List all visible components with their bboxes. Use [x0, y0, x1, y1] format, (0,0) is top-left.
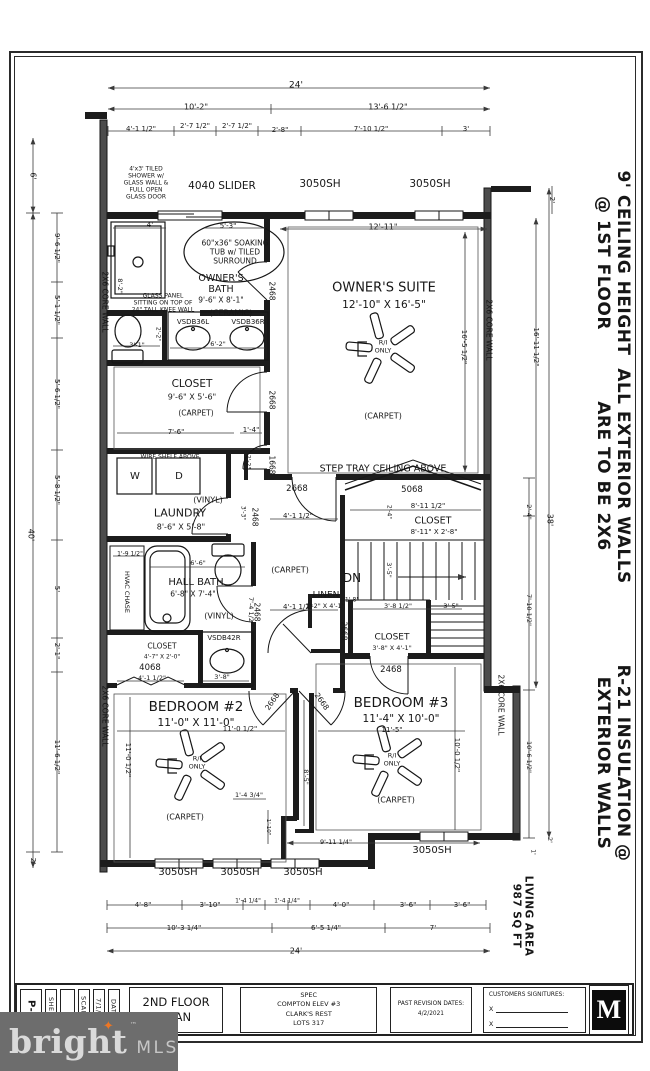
- window-3050sh-bottom-a: 3050SH: [158, 867, 197, 879]
- door-2668-suite-entry: 2668: [286, 484, 308, 494]
- room-owners-closet: CLOSET: [172, 378, 213, 390]
- dim-10-2: 10'-2": [184, 102, 208, 111]
- room-bedroom3-closet: CLOSET: [375, 633, 410, 644]
- dim-4-1-half-hall-top: 4'-1 1/2": [283, 512, 313, 520]
- dim-bedroom2-closet: 4'-7" X 2'-0": [144, 653, 180, 660]
- dim-5-3-tub: 5'-3": [220, 222, 237, 230]
- dim-2-8: 2'-8": [272, 126, 289, 134]
- dim-5ft-left: 5': [53, 586, 61, 592]
- window-3050sh-top-b: 3050SH: [409, 178, 450, 190]
- dim-overall-width-bottom: 24': [290, 946, 302, 955]
- note-ceiling-height: 9' CEILING HEIGHT @ 1ST FLOOR: [593, 170, 633, 355]
- finish-hall-bath: (VINYL): [204, 611, 233, 620]
- finish-owners-closet: (CARPET): [178, 410, 213, 419]
- project-info: SPEC COMPTON ELEV #3 CLARK'S REST LOTS 3…: [240, 987, 377, 1033]
- mls-text: MLS: [136, 1038, 178, 1058]
- dim-1-4-quarter-b: 1'-4 1/4": [274, 897, 300, 904]
- vanity-vsdb42r: VSDB42R: [207, 634, 240, 642]
- signatures-box: CUSTOMERS SIGNITURES: X X: [483, 987, 586, 1033]
- bright-mls-wordmark: bright ✦ ™: [9, 1025, 127, 1058]
- note-step-tray: STEP TRAY CEILING ABOVE: [320, 463, 447, 474]
- dim-38ft-right: 38': [545, 514, 554, 526]
- dim-bedroom3: 11'-4" X 10'-0": [363, 713, 440, 725]
- door-1668-hall: 1668: [267, 455, 276, 474]
- dim-bedroom3-closet: 3'-8" X 4'-1": [372, 645, 411, 653]
- dim-4-0: 4'-0": [333, 901, 350, 909]
- appliance-dryer: D: [175, 471, 183, 483]
- dim-10-0-half-b3: 10'-0 1/2": [453, 738, 461, 773]
- door-2668-bedroom2: 2668: [264, 692, 282, 713]
- room-hall-bath: HALL BATH: [168, 577, 223, 589]
- dim-1-4-34: 1'-4 3/4": [235, 792, 263, 800]
- core-wall-right-lower: 2X6 CORE WALL: [496, 674, 505, 735]
- appliance-washer: W: [130, 471, 140, 483]
- door-2668-bedroom3: 2668: [312, 692, 330, 713]
- dim-1-8-linen: 1'-8": [345, 596, 359, 603]
- dim-40ft-left: 40': [26, 529, 35, 541]
- dim-3-6-b: 3'-6": [454, 901, 471, 909]
- dim-5-1-half-left: 5'-1 1/2": [53, 295, 61, 325]
- dim-10-3-quarter: 10'-3 1/4": [167, 924, 202, 932]
- note-wire-shelf: WIRE SHELF ABOVE: [140, 453, 199, 460]
- door-2668-owners-closet: 2668: [267, 390, 276, 409]
- dim-2-4-stairs: 2'-4": [385, 505, 392, 519]
- dim-2ft-left-bottom: 2': [29, 858, 37, 864]
- finish-hall: (CARPET): [271, 565, 309, 574]
- floor-plan-sheet: 24'10'-2"13'-6 1/2"4'-1 1/2"2'-7 1/2"2'-…: [0, 0, 650, 1071]
- dim-4ft-shower: 4': [147, 221, 153, 229]
- core-wall-left-lower: 2X6 CORE WALL: [100, 685, 109, 746]
- dim-1-4-closet: 1'-4": [243, 426, 260, 434]
- dim-7-10-half-top: 7'-10 1/2": [354, 125, 389, 133]
- window-3050sh-b3: 3050SH: [412, 845, 451, 857]
- dim-4-1-half-top: 4'-1 1/2": [126, 125, 156, 133]
- dim-11-0-half-b2-v: 11'-0 1/2": [124, 743, 132, 778]
- bright-mls-watermark: bright ✦ ™ MLS: [0, 1012, 178, 1071]
- finish-bedroom2: (CARPET): [166, 812, 204, 821]
- room-owners-bath: OWNER'S BATH: [198, 273, 243, 295]
- room-bedroom3: BEDROOM #3: [354, 696, 449, 712]
- dim-6-6-hallbath: 6'-6": [190, 560, 205, 568]
- plan-annotations: 24'10'-2"13'-6 1/2"4'-1 1/2"2'-7 1/2"2'-…: [0, 0, 650, 1071]
- dim-3ft-top: 3': [463, 125, 469, 133]
- door-2668-linen: 2668: [339, 621, 348, 640]
- room-stairs-closet: CLOSET: [415, 515, 452, 526]
- finish-bedroom3: (CARPET): [377, 795, 415, 804]
- finish-owners-bath: (CERAMIC): [210, 308, 252, 317]
- dim-7-6-closet: 7'-6": [168, 428, 185, 436]
- room-owners-suite: OWNER'S SUITE: [332, 280, 436, 295]
- window-3050sh-top-a: 3050SH: [299, 178, 340, 190]
- door-4068: 4068: [139, 663, 161, 673]
- dim-owners-bath: 9'-6" X 8'-1": [198, 297, 243, 306]
- dim-10-6-half-right: 10'-6 1/2": [524, 741, 532, 773]
- signature-line-1[interactable]: X: [489, 1005, 568, 1013]
- vanity-vsdb36l: VSDB36L: [177, 318, 209, 326]
- dim-12-11: 12'-11": [368, 222, 397, 231]
- dim-3-5-stairs: 3'-5": [384, 562, 392, 577]
- dim-3-6-a: 3'-6": [400, 901, 417, 909]
- dim-overall-width-top: 24': [289, 81, 303, 92]
- core-wall-left-upper: 2X6 CORE WALL: [100, 271, 109, 332]
- room-bedroom2: BEDROOM #2: [149, 700, 244, 716]
- note-tiled-shower: 4'x3' TILED SHOWER w/ GLASS WALL & FULL …: [124, 165, 169, 200]
- door-2468-bedroom3-closet: 2468: [380, 665, 402, 675]
- revision-label: PAST REVISION DATES:: [398, 1000, 464, 1009]
- builder-logo: M: [589, 985, 629, 1035]
- finish-owners-suite: (CARPET): [364, 411, 402, 420]
- dim-3-1-toilet: 3'-1": [129, 342, 144, 350]
- note-soaking-tub: 60"x36" SOAKING TUB w/ TILED SURROUND: [201, 240, 268, 267]
- dim-6ft-left: 6': [28, 172, 37, 179]
- dim-11-6-half-left: 11'-6 1/2": [53, 740, 61, 775]
- dim-1ft-right-bottom: 1': [529, 849, 536, 854]
- trademark-symbol: ™: [130, 1022, 138, 1029]
- builder-logo-letter: M: [592, 990, 626, 1030]
- vanity-vsdb36r: VSDB36R: [231, 318, 264, 326]
- dim-6-2-vanity: 6'-2": [210, 341, 225, 349]
- dim-9-11-quarter: 9'-11 1/4": [320, 839, 352, 847]
- dim-2-7-half-a: 2'-7 1/2": [180, 122, 210, 130]
- window-5068: 5068: [401, 485, 423, 495]
- revision-box: PAST REVISION DATES: 4/2/2021: [390, 987, 472, 1033]
- fan-bedroom2-label: R/I ONLY: [189, 755, 206, 770]
- dim-2-2-toilet: 2'-2": [154, 327, 161, 341]
- door-2468-laundry: 2468: [250, 507, 259, 526]
- window-4040-slider: 4040 SLIDER: [188, 180, 256, 192]
- dim-11-0-half-b2: 11'-0 1/2": [223, 725, 258, 733]
- dim-2-2-alcove: 2'-2": [244, 455, 251, 469]
- dim-11-5-b3: 11'-5": [381, 726, 402, 734]
- room-linen: LINEN: [313, 591, 340, 602]
- dim-2ft-right-bottom: 2': [545, 837, 553, 843]
- dim-laundry: 8'-6" X 5'-8": [157, 522, 205, 531]
- door-2468-owners-bath: 2468: [267, 281, 276, 300]
- dim-8-2-shower: 8'-2": [115, 278, 123, 293]
- dim-16-5-half-suite: 16'-5 1/2": [460, 330, 468, 365]
- dim-linen: 1'-2" X 4'-1": [305, 603, 344, 611]
- room-laundry: LAUNDRY: [154, 508, 206, 521]
- dim-3-8-half-closet3: 3'-8 1/2": [384, 603, 412, 611]
- dim-6-5-quarter: 6'-5 1/4": [311, 924, 341, 932]
- stairs-dn: DN: [343, 571, 361, 585]
- signatures-label: CUSTOMERS SIGNITURES:: [489, 992, 564, 998]
- dim-2-1-left: 2'-1": [53, 643, 61, 660]
- fan-bedroom3-label: R/I ONLY: [384, 752, 401, 767]
- dim-stairs-closet: 8'-11" X 2'-8": [411, 528, 458, 536]
- dim-2-7-half-b: 2'-7 1/2": [222, 122, 252, 130]
- dim-3-5-closet3: 3'-5": [443, 603, 458, 611]
- signature-line-2[interactable]: X: [489, 1020, 568, 1028]
- dim-3-8-closet2: 3'-8": [214, 674, 229, 682]
- dim-8-5: 8'-5": [301, 769, 309, 784]
- dim-1-4-quarter-a: 1'-4 1/4": [235, 897, 261, 904]
- dim-owners-closet: 9'-6" X 5'-6": [168, 392, 216, 401]
- note-insulation: R-21 INSULATION @ EXTERIOR WALLS: [593, 664, 633, 861]
- dim-7ft: 7': [430, 924, 436, 932]
- door-2468-hall-bath: 2468: [252, 602, 261, 621]
- dim-4-1-half-closet2: 4'-1 1/2": [138, 675, 166, 683]
- dim-5-8-half-left: 5'-8 1/2": [53, 475, 61, 505]
- dim-3-10: 3'-10": [199, 901, 220, 909]
- dim-7-10-half-right: 7'-10 1/2": [524, 594, 532, 626]
- window-3050sh-bottom-c: 3050SH: [283, 867, 322, 879]
- note-glass-panel: GLASS PANEL SITTING ON TOP OF 24" TALL K…: [132, 292, 195, 313]
- dim-9-6-half-left: 9'-6 1/2": [53, 233, 61, 263]
- dim-5-6-half-left: 5'-6 1/2": [53, 379, 61, 409]
- note-exterior-walls: ALL EXTERIOR WALLS ARE TO BE 2X6: [593, 368, 633, 584]
- dim-hall-bath: 6'-8" X 7'-4": [170, 591, 215, 600]
- window-3050sh-bottom-b: 3050SH: [220, 867, 259, 879]
- note-living-area: LIVING AREA 987 SQ FT: [510, 876, 535, 957]
- dim-1-9-half-hvac: 1'-9 1/2": [117, 550, 143, 557]
- dim-owners-suite: 12'-10" X 16'-5": [342, 299, 426, 311]
- dim-13-6-half: 13'-6 1/2": [368, 102, 407, 111]
- dim-16-11-half-right: 16'-11 1/2": [532, 328, 540, 367]
- dim-2-4-right: 2'-4": [524, 504, 532, 519]
- dim-1-10: 1'-10": [265, 819, 271, 836]
- hvac-chase: HVAC CHASE: [122, 571, 130, 613]
- room-bedroom2-closet: CLOSET: [147, 643, 176, 652]
- star-icon: ✦: [103, 1020, 114, 1033]
- dim-3-3-laundry: 3'-3": [239, 506, 246, 520]
- dim-4-8: 4'-8": [135, 901, 152, 909]
- fan-owners-suite-label: R/I ONLY: [375, 339, 392, 354]
- revision-date: 4/2/2021: [418, 1010, 444, 1019]
- dim-2ft-right-top: 2': [548, 197, 556, 203]
- finish-laundry: (VINYL): [193, 495, 222, 504]
- dim-8-11-half-stairs: 8'-11 1/2": [411, 502, 446, 510]
- core-wall-right-upper: 2X6 CORE WALL: [484, 299, 493, 360]
